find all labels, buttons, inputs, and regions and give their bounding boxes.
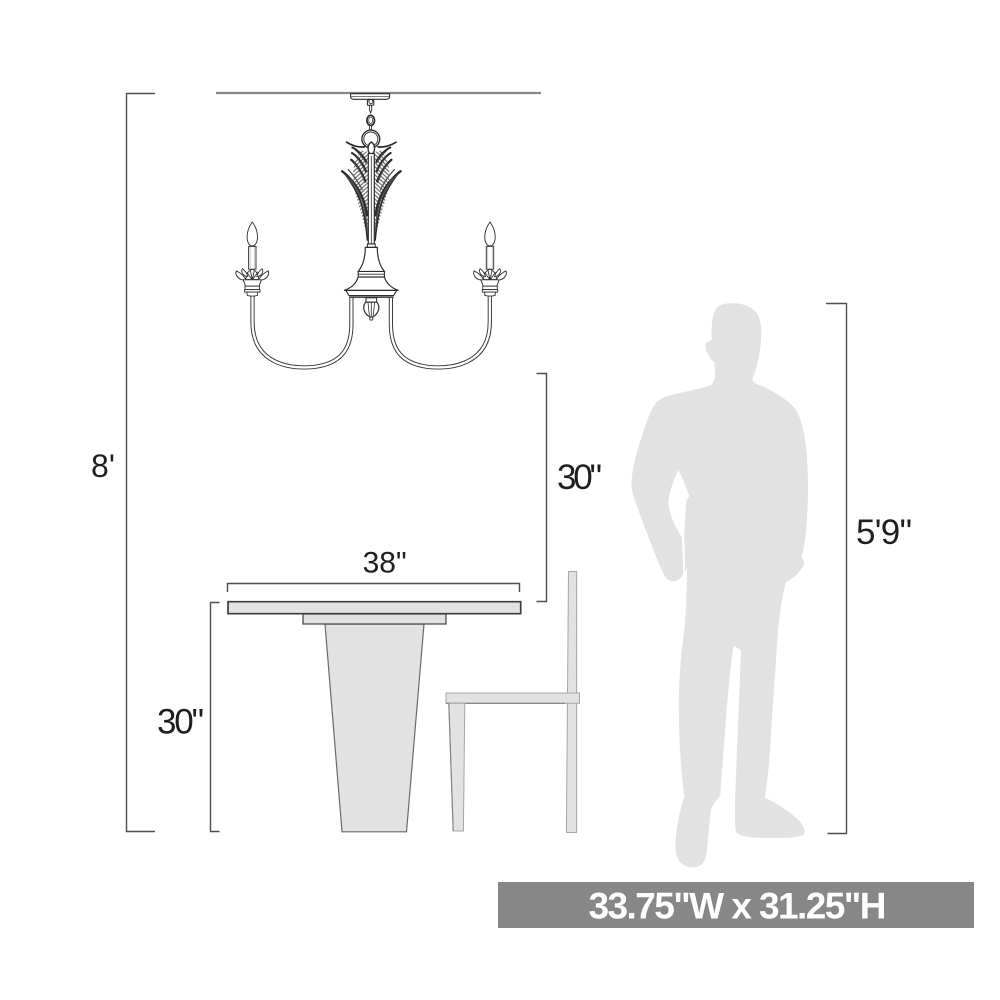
svg-text:5'9": 5'9": [856, 513, 912, 552]
svg-text:8': 8': [91, 448, 115, 484]
svg-text:33.75"W x 31.25"H: 33.75"W x 31.25"H: [589, 886, 887, 927]
svg-text:38": 38": [363, 547, 407, 580]
svg-text:30": 30": [557, 458, 602, 497]
svg-text:30": 30": [157, 703, 204, 742]
